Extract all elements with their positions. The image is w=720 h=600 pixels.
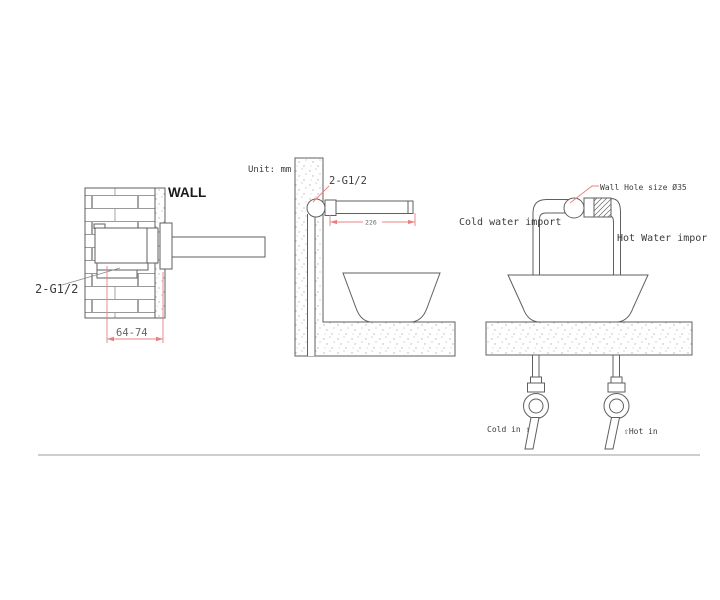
spout-dim-text: 226	[365, 219, 377, 227]
hot-fitting-upper	[611, 377, 622, 383]
cold-fitting-nut	[528, 383, 545, 392]
riser-pipe-body	[308, 214, 316, 356]
drawing-canvas: WALL 2-G1/2 64-74 Unit: mm	[0, 0, 720, 600]
basin-front	[508, 275, 648, 322]
spout-cylinder	[584, 198, 594, 217]
cold-fitting-upper	[531, 377, 542, 383]
side-thread-label: 2-G1/2	[329, 175, 367, 187]
hot-in-label: ⇧Hot in	[624, 427, 658, 436]
valve-inlet-upper	[97, 263, 148, 270]
spout-tube-section	[172, 237, 265, 257]
hot-valve-inner	[610, 399, 624, 413]
wall-hole-label: Wall Hole size Ø35	[600, 182, 687, 192]
cold-valve-inner	[529, 399, 543, 413]
unit-label: Unit: mm	[248, 165, 291, 175]
basin-side	[343, 273, 440, 322]
hot-import-label: Hot Water impor	[617, 233, 707, 244]
side-wall-counter	[295, 158, 455, 356]
dim-arrow-right	[156, 337, 163, 341]
hot-valve-tail	[605, 418, 620, 450]
cold-valve-assembly	[524, 355, 549, 449]
wall-label: WALL	[168, 185, 206, 200]
faucet-installation-diagram: WALL 2-G1/2 64-74 Unit: mm	[0, 0, 720, 600]
side-view: Unit: mm 2-G1/2 226	[248, 158, 455, 356]
section-thread-label: 2-G1/2	[35, 282, 78, 296]
dim-arrow-left	[107, 337, 114, 341]
spout-dim-arrow-left	[330, 220, 337, 224]
spout-joint	[307, 199, 325, 217]
counter-front	[486, 322, 692, 355]
front-view: Wall Hole size Ø35 Cold water import Hot…	[459, 182, 707, 449]
cold-import-label: Cold water import	[459, 217, 561, 228]
spout-collar	[325, 200, 336, 216]
section-view: WALL 2-G1/2 64-74	[35, 185, 265, 343]
spout-tube-side	[336, 201, 413, 214]
wall-hole	[564, 198, 584, 218]
hot-pipe-inner	[611, 217, 614, 277]
valve-inlet-lower	[97, 270, 137, 278]
cold-in-label: Cold in ⇧	[487, 425, 530, 434]
valve-body	[95, 228, 158, 263]
spout-flange	[160, 223, 172, 269]
spout-cylinder-hatched	[594, 198, 611, 217]
hot-fitting-nut	[608, 383, 625, 392]
spout-dim-arrow-right	[408, 220, 415, 224]
depth-dim-text: 64-74	[116, 327, 148, 339]
